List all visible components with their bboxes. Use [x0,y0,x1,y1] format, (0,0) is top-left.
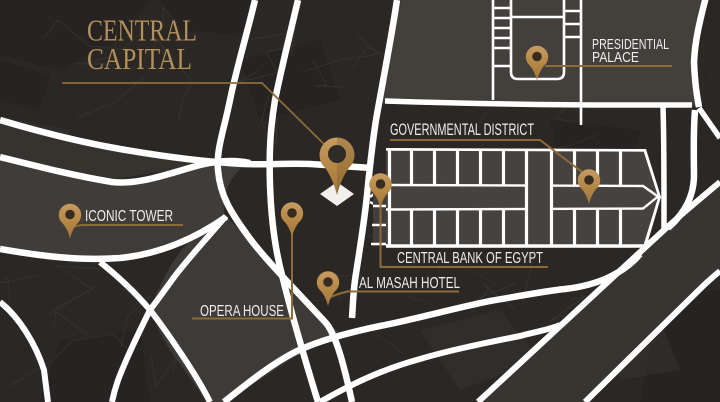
svg-text:AL MASAH HOTEL: AL MASAH HOTEL [359,275,460,292]
svg-text:CAPITAL: CAPITAL [87,41,192,76]
svg-text:ICONIC TOWER: ICONIC TOWER [85,208,173,225]
svg-text:PALACE: PALACE [592,49,639,66]
svg-text:GOVERNMENTAL DISTRICT: GOVERNMENTAL DISTRICT [390,121,534,139]
svg-text:OPERA HOUSE: OPERA HOUSE [200,303,284,320]
svg-text:CENTRAL BANK OF EGYPT: CENTRAL BANK OF EGYPT [397,250,543,267]
